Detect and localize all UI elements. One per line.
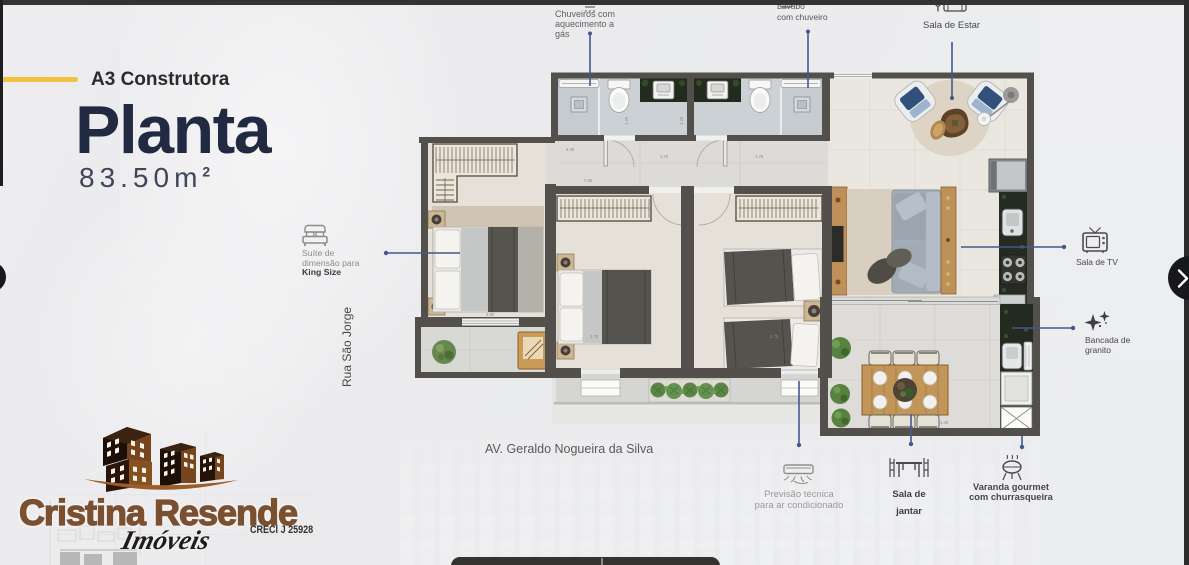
svg-text:1.75: 1.75: [660, 154, 669, 159]
svg-text:7.80: 7.80: [584, 178, 593, 183]
svg-text:2.75: 2.75: [590, 334, 599, 339]
svg-text:4.40: 4.40: [566, 147, 575, 152]
svg-text:2.60: 2.60: [486, 312, 495, 317]
svg-text:1.75: 1.75: [755, 154, 764, 159]
svg-text:2.75: 2.75: [770, 334, 779, 339]
svg-text:1.20: 1.20: [679, 116, 684, 125]
svg-text:1.20: 1.20: [624, 116, 629, 125]
svg-text:1.40: 1.40: [940, 420, 949, 425]
